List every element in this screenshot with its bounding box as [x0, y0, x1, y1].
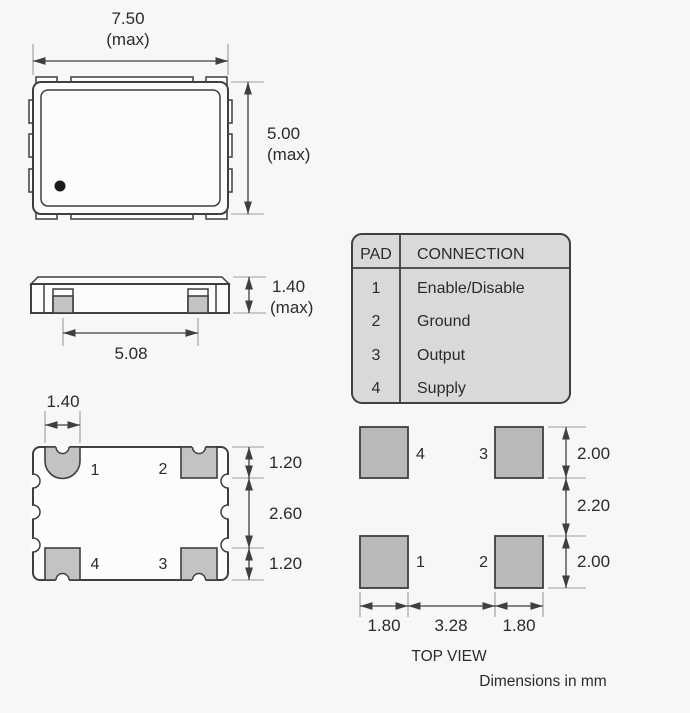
side-pad-left: [53, 296, 73, 313]
table-header-pad: PAD: [360, 246, 392, 263]
top-height-qualifier: (max): [267, 145, 310, 164]
land-dim-top-value: 2.00: [577, 444, 610, 463]
top-width-qualifier: (max): [106, 30, 149, 49]
top-width-value: 7.50: [111, 9, 144, 28]
bottom-pad-3-label: 3: [159, 556, 168, 573]
bottom-pad-width-value: 1.40: [46, 392, 79, 411]
drawing-canvas: 7.50 (max) 5.00 (max) 1.40 (max): [0, 0, 690, 713]
dimension-bottom-pad-width: 1.40: [45, 392, 80, 443]
dimension-bottom-vertical: 1.20 2.60 1.20: [232, 447, 302, 580]
table-header-connection: CONNECTION: [417, 246, 525, 263]
land-pad-3: [495, 427, 543, 478]
bottom-pad-2-label: 2: [159, 461, 168, 478]
land-dim-col-gap-value: 3.28: [434, 616, 467, 635]
dimension-width: 7.50 (max): [33, 9, 228, 75]
pad-connection-table: PAD CONNECTION 1 Enable/Disable 2 Ground…: [352, 234, 570, 403]
land-pattern: 4 3 1 2 2.00 2.20 2.00 1.80 3.28: [360, 427, 610, 690]
land-pad-1-label: 1: [416, 554, 425, 571]
package-body: [33, 82, 228, 214]
package-dimensions-drawing: 7.50 (max) 5.00 (max) 1.40 (max): [0, 0, 690, 713]
table-row-2-pad: 2: [372, 313, 381, 330]
land-dim-gap-value: 2.20: [577, 496, 610, 515]
dimension-thickness: 1.40 (max): [233, 277, 313, 317]
dimension-height: 5.00 (max): [231, 82, 310, 214]
units-caption: Dimensions in mm: [479, 673, 606, 690]
table-row-1-connection: Enable/Disable: [417, 280, 525, 297]
bottom-dim-bot-value: 1.20: [269, 554, 302, 573]
land-pad-3-label: 3: [479, 446, 488, 463]
bottom-dim-top-value: 1.20: [269, 453, 302, 472]
package-side-view: 1.40 (max) 5.08: [31, 277, 313, 363]
package-top-view: 7.50 (max) 5.00 (max): [29, 9, 310, 219]
top-view-caption: TOP VIEW: [411, 648, 487, 665]
side-lid: [31, 277, 229, 284]
side-height-value: 1.40: [272, 277, 305, 296]
top-height-value: 5.00: [267, 124, 300, 143]
dimension-pad-span: 5.08: [63, 318, 198, 363]
land-pad-4: [360, 427, 408, 478]
pin1-marker-dot: [55, 181, 66, 192]
land-dim-left-width-value: 1.80: [367, 616, 400, 635]
table-row-3-connection: Output: [417, 347, 466, 364]
side-pad-right: [188, 296, 208, 313]
land-pad-4-label: 4: [416, 446, 425, 463]
dimension-land-horizontal: 1.80 3.28 1.80: [360, 592, 543, 635]
bottom-pad-4-label: 4: [91, 556, 100, 573]
package-bottom-view: 1 2 4 3 1.40 1.20 2.60 1.20: [31, 392, 302, 582]
table-row-4-pad: 4: [372, 380, 381, 397]
dimension-land-vertical: 2.00 2.20 2.00: [548, 427, 610, 588]
table-row-2-connection: Ground: [417, 313, 470, 330]
land-pad-1: [360, 536, 408, 588]
land-dim-right-width-value: 1.80: [502, 616, 535, 635]
land-dim-bot-value: 2.00: [577, 552, 610, 571]
table-row-1-pad: 1: [372, 280, 381, 297]
side-height-qualifier: (max): [270, 298, 313, 317]
land-pad-2-label: 2: [479, 554, 488, 571]
table-row-4-connection: Supply: [417, 380, 466, 397]
side-pad-span-value: 5.08: [114, 344, 147, 363]
land-pad-2: [495, 536, 543, 588]
bottom-pad-1-label: 1: [91, 462, 100, 479]
table-row-3-pad: 3: [372, 347, 381, 364]
bottom-dim-mid-value: 2.60: [269, 504, 302, 523]
